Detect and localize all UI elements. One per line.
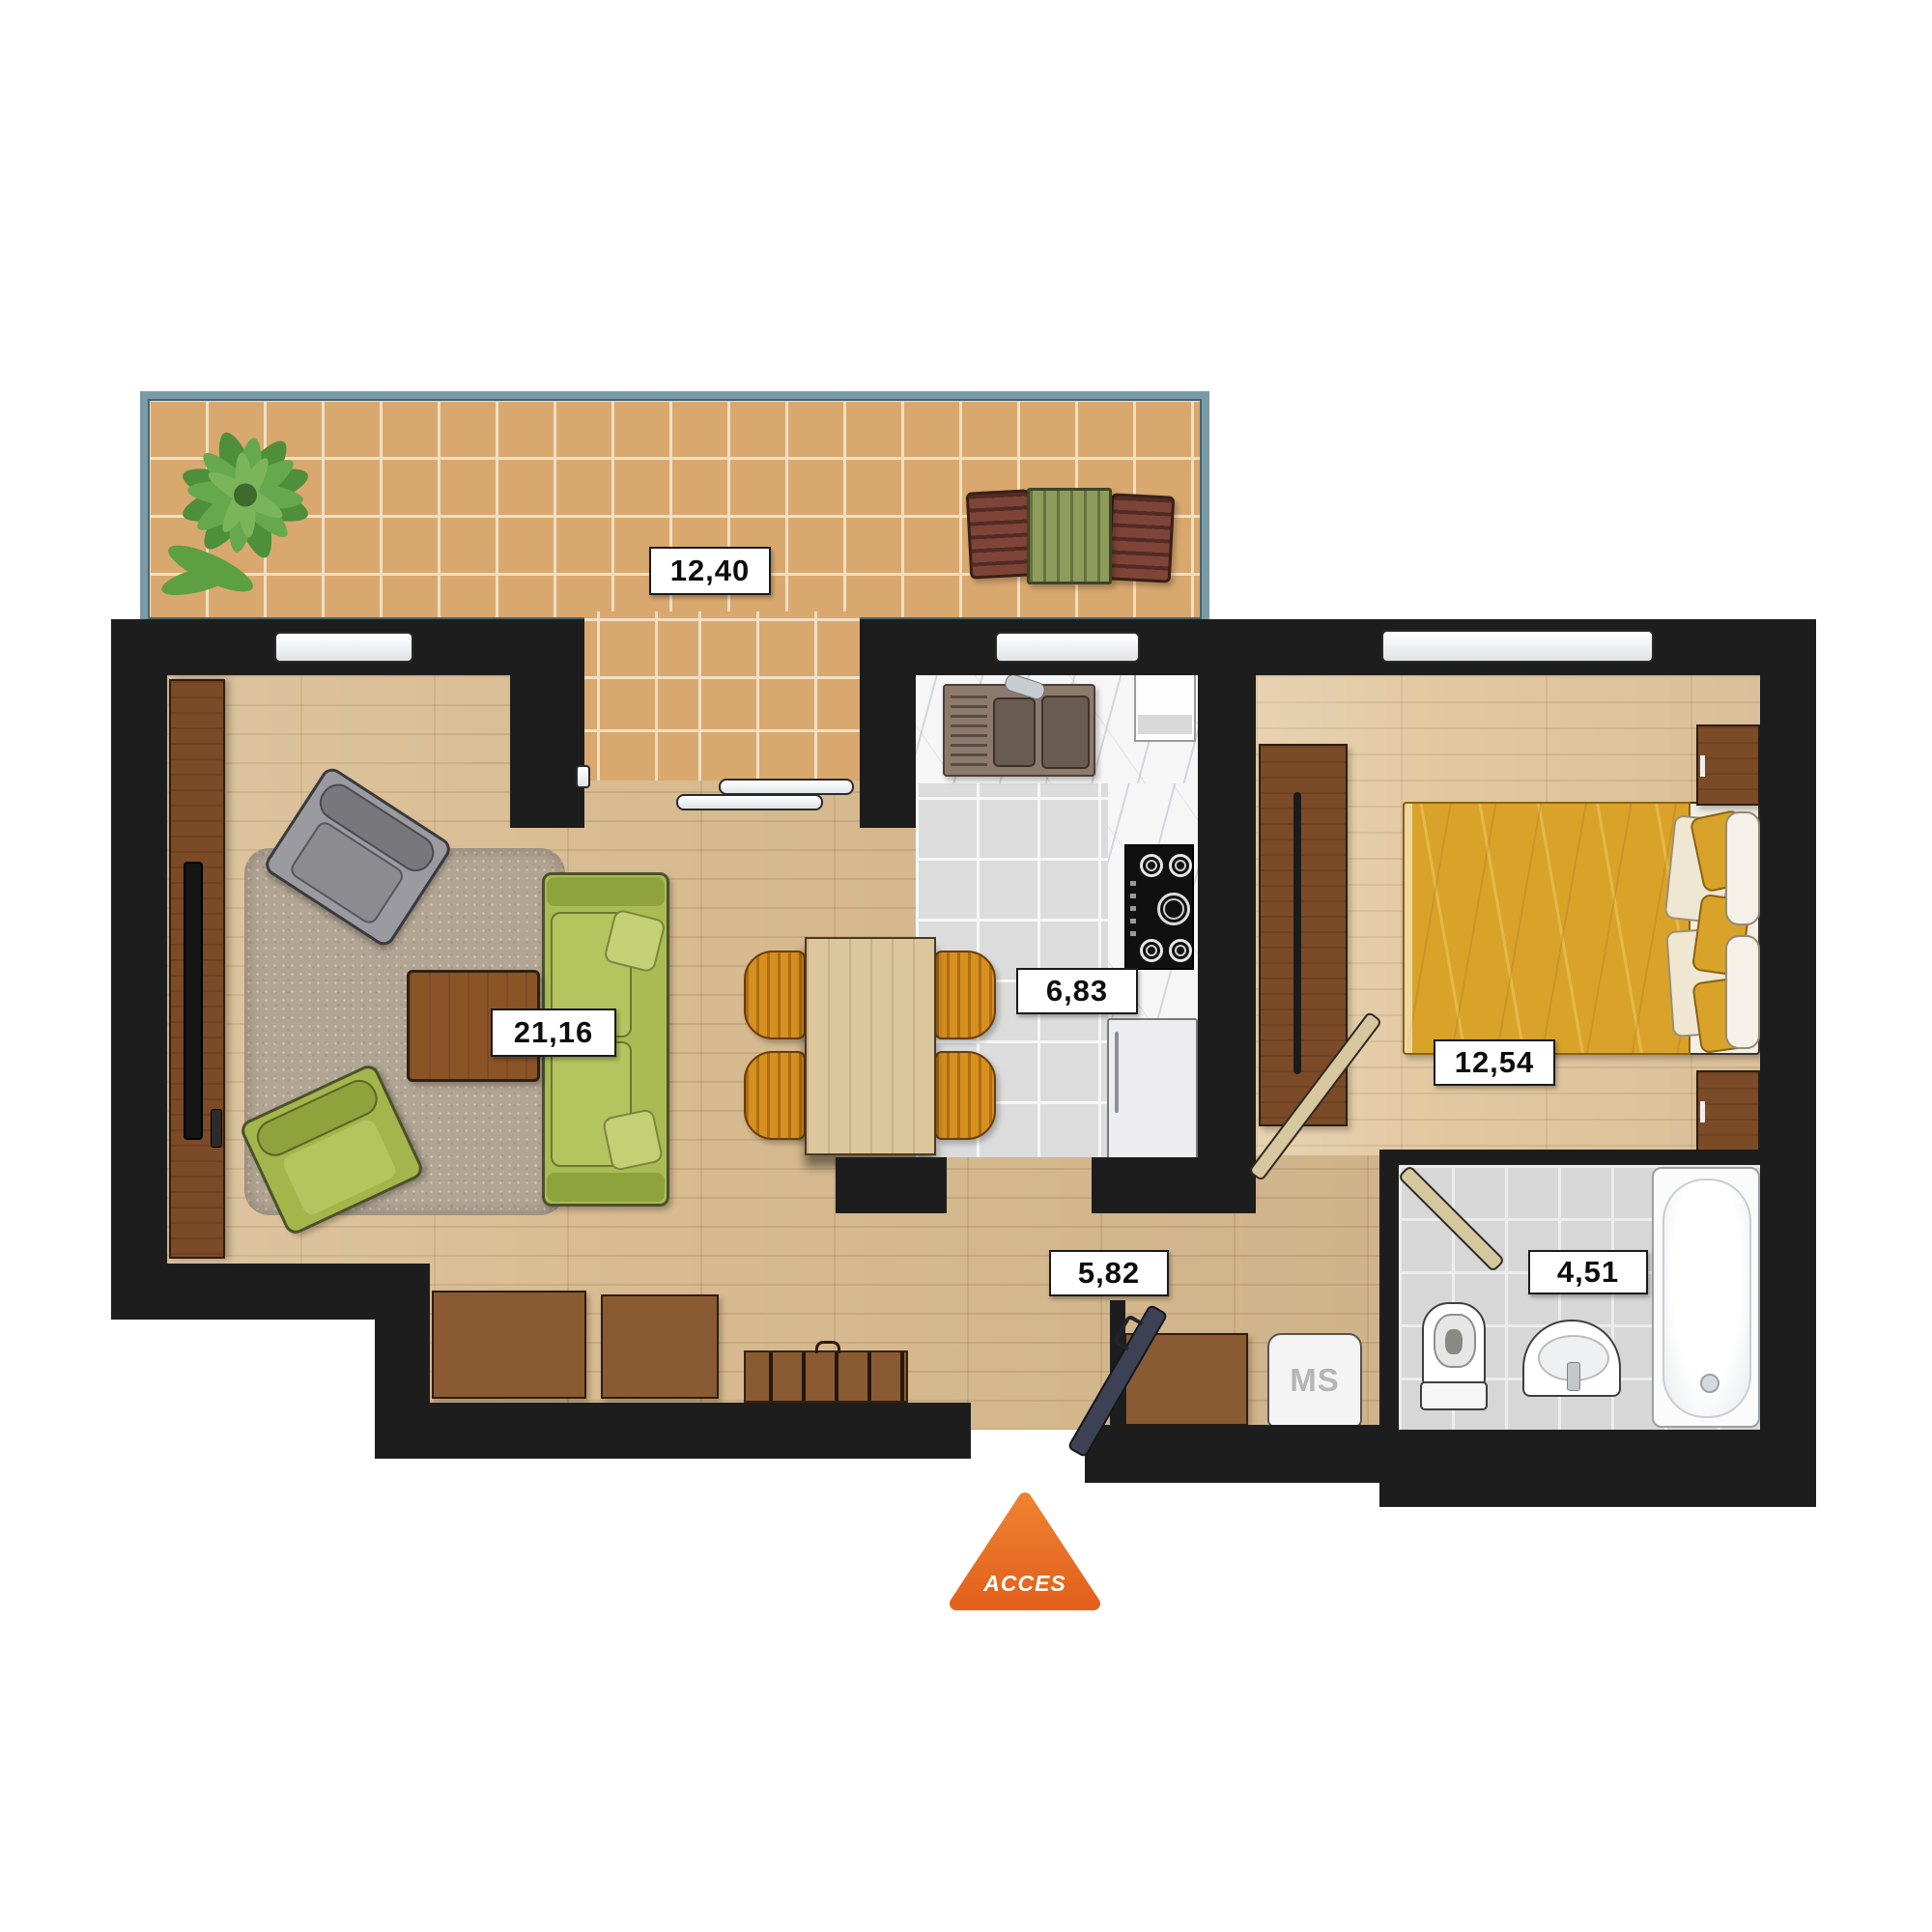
sink-basin-right xyxy=(1041,696,1090,769)
dining-chair-bl xyxy=(744,1051,806,1140)
terrace-door-stop xyxy=(576,765,590,788)
bathtub-drain xyxy=(1700,1374,1719,1393)
nightstand-bottom xyxy=(1696,1070,1760,1151)
stove xyxy=(1124,844,1194,970)
bed-headboard-cushion-1 xyxy=(1725,811,1760,925)
wall-bottom-mid xyxy=(1085,1425,1379,1483)
nightstand-top xyxy=(1696,724,1760,806)
terrace-sliding-door-panel-right xyxy=(719,779,854,795)
wall-kitchen-east xyxy=(1198,675,1256,1213)
kitchen-area-value: 6,83 xyxy=(1046,974,1108,1009)
bedroom-area-label: 12,54 xyxy=(1434,1039,1555,1086)
hall-cabinet-large xyxy=(432,1291,586,1399)
toilet xyxy=(1422,1302,1486,1387)
toilet-bowl-center xyxy=(1445,1329,1463,1354)
bedroom-window xyxy=(1381,630,1654,663)
nightstand-bottom-handle xyxy=(1700,1101,1705,1122)
terrace-table xyxy=(1027,488,1112,584)
wall-right xyxy=(1760,675,1816,1507)
kitchen-appliance-band xyxy=(1138,715,1192,734)
sofa-armrest-bottom xyxy=(547,1173,665,1202)
wall-left xyxy=(111,675,167,1320)
palm-plant xyxy=(153,394,336,611)
wall-bath-west xyxy=(1379,1150,1399,1459)
sink-basin-left xyxy=(993,697,1036,767)
kitchen-area-label: 6,83 xyxy=(1016,968,1138,1014)
washing-machine: MS xyxy=(1267,1333,1362,1428)
nightstand-top-handle xyxy=(1700,755,1705,777)
stove-burner-2 xyxy=(1169,854,1192,877)
floor-plan: 12,40 21,16 xyxy=(0,0,1932,1932)
kitchen-sink-unit xyxy=(943,684,1095,777)
kitchen-window xyxy=(995,632,1140,663)
kitchen-appliance-box xyxy=(1134,670,1196,742)
terrace-chair-left xyxy=(966,489,1035,579)
wall-bottom-west xyxy=(430,1403,971,1459)
tv xyxy=(184,862,203,1140)
toilet-tank xyxy=(1420,1381,1488,1410)
coat-rack-hook xyxy=(815,1341,840,1353)
washing-machine-label: MS xyxy=(1269,1335,1360,1426)
bedroom-area-value: 12,54 xyxy=(1455,1045,1535,1080)
stove-burner-4 xyxy=(1169,939,1192,962)
sofa-pillow-bottom xyxy=(602,1108,664,1172)
wall-recess-right xyxy=(860,619,916,828)
bed-duvet xyxy=(1403,802,1690,1055)
hallway-area-value: 5,82 xyxy=(1078,1256,1140,1291)
coat-rack xyxy=(744,1350,908,1403)
living-area-value: 21,16 xyxy=(514,1015,594,1050)
bed-headboard-cushion-2 xyxy=(1725,935,1760,1049)
dining-chair-br xyxy=(934,1051,996,1140)
dining-chair-tl xyxy=(744,951,806,1039)
outside-cutout xyxy=(106,1320,375,1513)
hall-cabinet-small xyxy=(601,1294,719,1399)
stove-burner-center xyxy=(1157,893,1190,925)
fridge xyxy=(1107,1018,1198,1171)
wall-bath-north xyxy=(1379,1150,1816,1165)
terrace-floor-recess xyxy=(584,611,860,781)
stove-burner-3 xyxy=(1140,939,1163,962)
bathtub xyxy=(1652,1167,1760,1428)
bathroom-sink-faucet xyxy=(1567,1362,1580,1391)
terrace-area-label: 12,40 xyxy=(649,547,771,595)
dining-table xyxy=(805,937,936,1155)
access-arrow: ACCES xyxy=(947,1490,1103,1613)
stove-burner-1 xyxy=(1140,854,1163,877)
terrace-chair-right xyxy=(1107,493,1176,582)
terrace-sliding-door-panel-left xyxy=(676,794,823,810)
sink-drainboard xyxy=(951,696,987,767)
stove-knobs xyxy=(1130,881,1136,937)
dining-chair-tr xyxy=(934,951,996,1039)
access-label: ACCES xyxy=(947,1571,1103,1597)
wardrobe-handle xyxy=(1293,792,1301,1074)
living-window xyxy=(274,632,413,663)
bathroom-area-value: 4,51 xyxy=(1557,1255,1619,1290)
wall-kitchen-south-a xyxy=(836,1157,947,1213)
bathroom-area-label: 4,51 xyxy=(1528,1250,1648,1294)
hallway-area-label: 5,82 xyxy=(1049,1250,1169,1296)
sofa-armrest-top xyxy=(547,877,665,906)
living-area-label: 21,16 xyxy=(491,1009,616,1057)
tv-remote xyxy=(211,1109,222,1148)
wall-recess-left xyxy=(510,619,584,828)
wall-step-left xyxy=(375,1264,430,1459)
wall-bath-bottom xyxy=(1379,1430,1816,1507)
fridge-handle xyxy=(1115,1032,1119,1113)
terrace-area-value: 12,40 xyxy=(670,554,751,588)
